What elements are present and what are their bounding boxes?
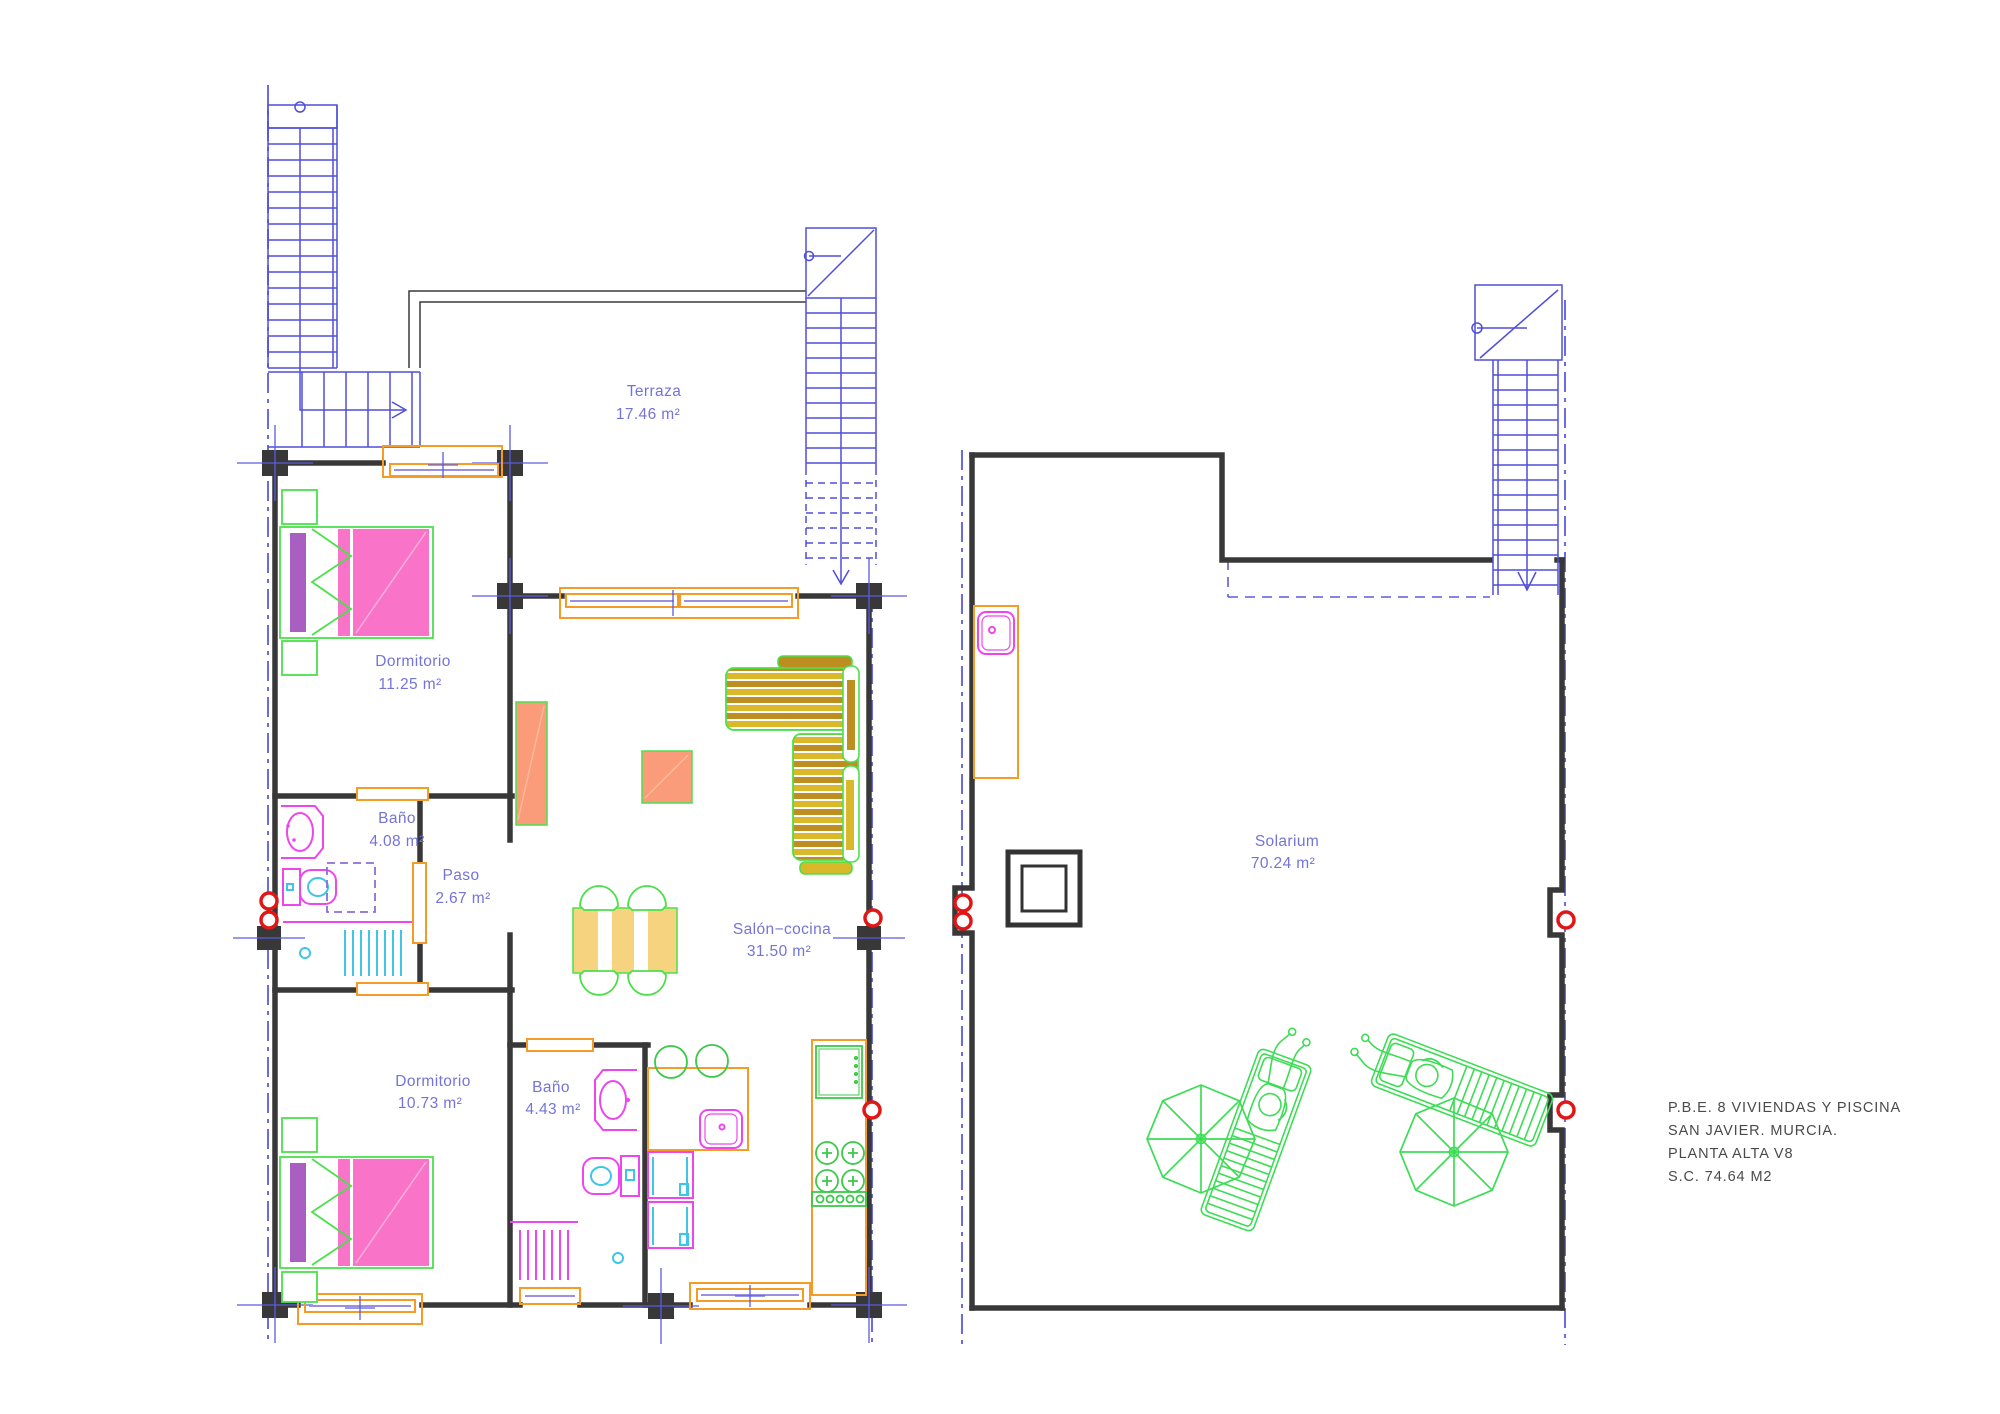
doors <box>357 788 593 1051</box>
chair <box>580 886 618 910</box>
left-plan-apartment: Terraza 17.46 m² Dormitorio 11.25 m² Bañ… <box>233 85 907 1345</box>
terraza-staircase <box>805 228 877 584</box>
area-paso: 2.67 m² <box>435 890 490 907</box>
room-labels-right: Solarium 70.24 m² <box>1251 833 1319 872</box>
label-salon: Salón−cocina <box>733 921 831 938</box>
washer <box>648 1152 693 1198</box>
sofa <box>726 656 859 874</box>
window-salon-terraza <box>560 588 798 618</box>
area-terraza: 17.46 m² <box>616 406 680 423</box>
parasol-icon <box>1400 1098 1508 1206</box>
kitchen-sink <box>700 1110 742 1148</box>
outdoor-furniture <box>1147 1020 1554 1232</box>
solarium-counter <box>974 606 1018 778</box>
sun-lounger <box>1342 1022 1554 1148</box>
area-bano1: 4.08 m² <box>369 833 424 850</box>
window-bedroom1 <box>383 446 502 478</box>
title-line-2: SAN JAVIER. MURCIA. <box>1668 1123 1838 1139</box>
right-plan-solarium: Solarium 70.24 m² <box>955 285 1574 1345</box>
title-line-4: S.C. 74.64 M2 <box>1668 1169 1772 1185</box>
door-bathroom1 <box>413 863 426 943</box>
solarium-staircase <box>1472 285 1562 595</box>
door-bedroom2 <box>357 983 428 995</box>
sun-lounger <box>1200 1020 1323 1232</box>
label-dormitorio1: Dormitorio <box>375 653 450 670</box>
window-kitchen <box>690 1283 810 1309</box>
area-dormitorio2: 10.73 m² <box>398 1095 462 1112</box>
coffee-table <box>642 751 692 803</box>
window-bathroom2 <box>520 1288 580 1304</box>
laundry-appliances <box>648 1152 693 1248</box>
area-solarium: 70.24 m² <box>1251 855 1315 872</box>
shower-mat <box>520 1230 568 1280</box>
nightstand <box>282 1272 317 1302</box>
door-bedroom1 <box>357 788 428 800</box>
nightstand <box>282 490 317 524</box>
nightstand <box>282 1118 317 1152</box>
area-dormitorio1: 11.25 m² <box>378 676 441 693</box>
washbasin <box>595 1070 637 1130</box>
chimney-shaft <box>1008 852 1080 925</box>
chair <box>628 971 666 995</box>
bathroom1-fixtures <box>281 806 412 976</box>
dining-set <box>573 886 677 995</box>
exterior-staircase <box>268 102 420 447</box>
room-labels-left: Terraza 17.46 m² Dormitorio 11.25 m² Bañ… <box>369 383 831 1118</box>
hob <box>812 1142 866 1206</box>
toilet <box>583 1156 639 1196</box>
title-line-1: P.B.E. 8 VIVIENDAS Y PISCINA <box>1668 1100 1901 1116</box>
shower-tray <box>327 863 375 912</box>
terraza-parapet <box>409 291 806 368</box>
kitchen-counter-east <box>812 1040 866 1295</box>
label-bano1: Baño <box>378 810 416 827</box>
label-bano2: Baño <box>532 1079 570 1096</box>
fridge <box>816 1046 862 1098</box>
chair <box>628 886 666 910</box>
label-dormitorio2: Dormitorio <box>395 1073 470 1090</box>
area-bano2: 4.43 m² <box>525 1101 580 1118</box>
toilet <box>283 869 336 905</box>
double-bed <box>280 527 433 638</box>
chair <box>580 971 618 995</box>
area-salon: 31.50 m² <box>747 943 811 960</box>
bedroom2-furniture <box>280 1118 433 1302</box>
title-line-3: PLANTA ALTA V8 <box>1668 1146 1793 1162</box>
label-terraza: Terraza <box>627 383 681 400</box>
floorplan-canvas: Terraza 17.46 m² Dormitorio 11.25 m² Bañ… <box>0 0 2000 1414</box>
nightstand <box>282 641 317 675</box>
shower-mat <box>345 930 401 976</box>
label-paso: Paso <box>443 867 480 884</box>
dryer <box>648 1202 693 1248</box>
bedroom1-furniture <box>280 490 433 675</box>
tv-unit <box>516 702 547 825</box>
door-bathroom2 <box>527 1039 593 1051</box>
title-block: P.B.E. 8 VIVIENDAS Y PISCINA SAN JAVIER.… <box>1668 1100 1901 1185</box>
double-bed <box>280 1157 433 1268</box>
label-solarium: Solarium <box>1255 833 1319 850</box>
parasol-icon <box>1147 1085 1255 1193</box>
